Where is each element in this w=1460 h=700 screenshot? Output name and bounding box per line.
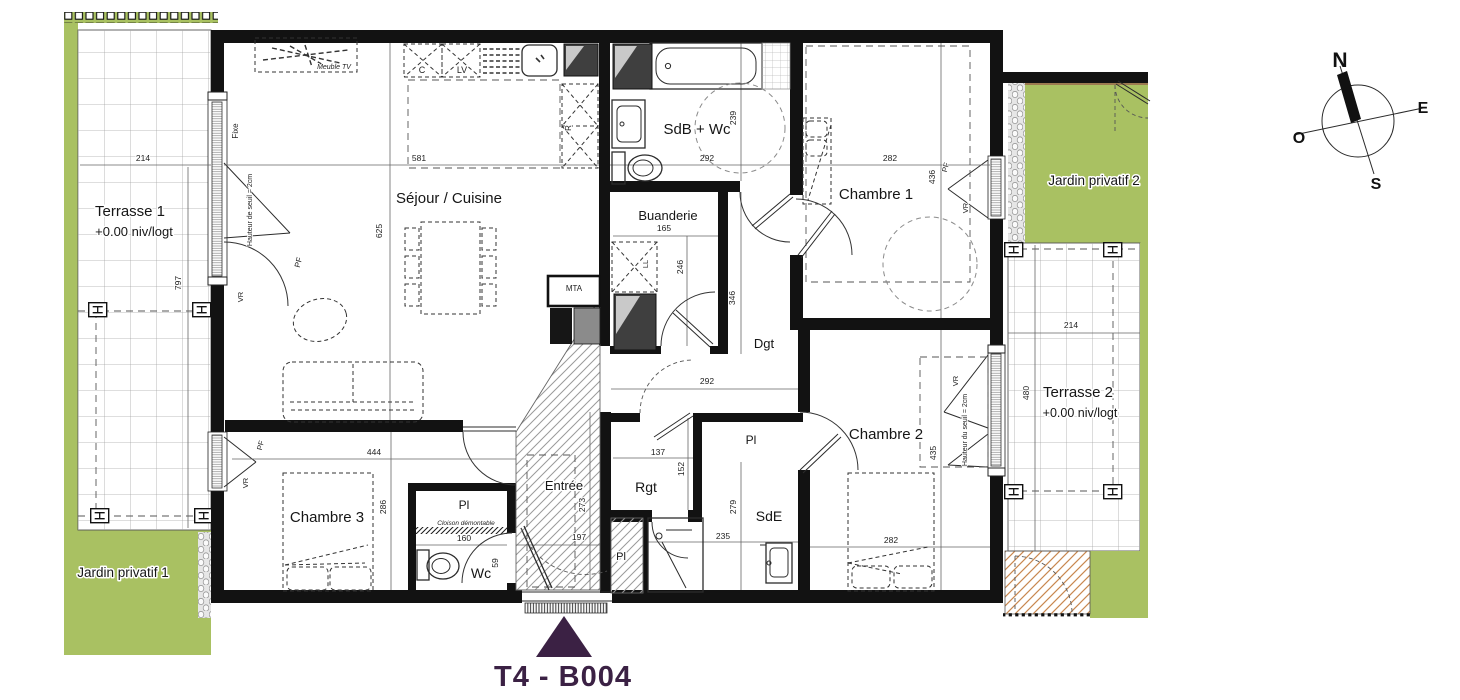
label-sejour: Séjour / Cuisine	[396, 190, 502, 207]
label-pl-dgt: Pl	[746, 433, 757, 447]
sdb-toilet	[612, 152, 662, 184]
chambre3-door-swing	[463, 432, 516, 485]
label-chambre1: Chambre 1	[839, 186, 913, 203]
bathtub	[650, 43, 762, 89]
ann-pf-ch1: PF	[940, 161, 951, 173]
label-buanderie: Buanderie	[638, 208, 697, 223]
ann-r: R	[564, 125, 573, 131]
label-terrasse2-level: +0.00 niv/logt	[1043, 406, 1118, 420]
chambre1-window	[948, 156, 1005, 219]
dim-sejour-w: 581	[412, 153, 426, 163]
sdb-door-swing	[740, 192, 790, 242]
compass-north: N	[1332, 49, 1347, 72]
jardin-privatif-2-area	[1025, 85, 1148, 243]
drainer-lines	[483, 49, 520, 73]
bed-single	[803, 118, 831, 204]
label-dgt: Dgt	[754, 336, 775, 351]
dim-terrasse1-h: 797	[173, 276, 183, 290]
ann-lv: LV	[457, 65, 467, 75]
sde-door-swing	[652, 522, 688, 558]
label-rgt: Rgt	[635, 479, 657, 495]
label-wc: Wc	[471, 565, 491, 581]
shower	[648, 518, 703, 592]
sdb-vanity	[612, 100, 645, 148]
dim-sejour-h: 625	[374, 224, 384, 238]
pebble-strip-2	[1008, 83, 1025, 243]
gravel-path-area	[1005, 551, 1090, 614]
dim-wc-w: 160	[457, 533, 471, 543]
dim-rgt-h: 152	[676, 462, 686, 476]
tiled-ledge	[762, 43, 790, 89]
ann-vr-ch1: VR	[961, 202, 970, 213]
dim-ch3-w: 444	[367, 447, 381, 457]
ann-c: C	[419, 65, 426, 75]
dim-terrasse1-w: 214	[136, 153, 150, 163]
wc-toilet	[417, 550, 459, 580]
kitchen-units	[404, 44, 598, 168]
dim-sde-w: 235	[716, 531, 730, 541]
ann-mta: MTA	[566, 284, 583, 293]
washing-machine	[612, 242, 657, 292]
label-sde: SdE	[756, 508, 782, 524]
unit-title: T4 - B004	[494, 661, 632, 693]
dim-terrasse2-w: 214	[1064, 320, 1078, 330]
kitchen-counter	[408, 80, 560, 168]
label-pl-entree: Pl	[616, 551, 626, 563]
floorplan-page: 214 797 581 625 292 239 282 436 165 246 …	[0, 0, 1460, 700]
dim-entree-h: 273	[577, 498, 587, 512]
ann-vr-ch2: VR	[951, 375, 960, 386]
dim-dgt-h: 346	[727, 291, 737, 305]
label-terrasse1: Terrasse 1	[95, 203, 165, 220]
label-jardin2: Jardin privatif 2	[1048, 173, 1140, 188]
rgt-door-swing	[640, 360, 693, 413]
water-heater	[614, 294, 656, 350]
pebble-strip-1	[198, 532, 211, 618]
jardin-privatif-1-area	[64, 530, 211, 655]
garden-block-br	[1090, 551, 1148, 618]
ann-meuble-tv: Meuble TV	[317, 64, 352, 71]
dim-ch3-h: 286	[378, 500, 388, 514]
dim-sde-h: 279	[728, 500, 738, 514]
ann-cloison: Cloison démontable	[437, 520, 495, 527]
buanderie-door-leaf	[673, 310, 713, 347]
label-chambre3: Chambre 3	[290, 509, 364, 526]
dim-ch1-w: 282	[883, 153, 897, 163]
chambre1-furniture	[803, 46, 977, 311]
dim-ch2-w: 282	[884, 535, 898, 545]
ann-seuil-ch2: Hauteur du seuil = 2cm	[962, 394, 969, 466]
ann-pf-ch3: PF	[255, 439, 266, 451]
dim-entree-w: 197	[572, 532, 586, 542]
compass-south: S	[1371, 176, 1382, 193]
ann-ll: LL	[641, 260, 650, 268]
compass-rose: N E O S	[1293, 49, 1429, 193]
dim-buanderie-w: 165	[657, 223, 671, 233]
dim-buanderie-h: 246	[675, 260, 685, 274]
dotted-boundary	[1003, 611, 1091, 618]
ann-fixe: Fixe	[231, 123, 240, 139]
dim-ch2-h: 435	[928, 446, 938, 460]
chambre2-door-leaf	[800, 434, 841, 473]
coffee-table	[288, 293, 351, 348]
dim-wc-h: 59	[490, 558, 500, 568]
sde-washbasin	[760, 543, 792, 583]
chambre3-door-leaf	[463, 427, 516, 431]
chambre3-furniture	[283, 473, 373, 591]
entrance-mat	[525, 603, 607, 613]
ann-vr-ch3: VR	[241, 477, 250, 488]
label-pl-wc: Pl	[459, 498, 470, 512]
compass-needle	[1337, 71, 1361, 123]
ann-seuil-sejour: Hauteur de seuil = 2cm	[247, 174, 254, 246]
entrance-arrow	[536, 616, 592, 657]
label-chambre2: Chambre 2	[849, 426, 923, 443]
unit-marker: T4 - B004	[494, 616, 632, 693]
dim-ch1-h: 436	[927, 170, 937, 184]
dim-sdb-w: 292	[700, 153, 714, 163]
rgt-door-leaf	[654, 413, 693, 440]
dim-rgt-w: 137	[651, 447, 665, 457]
chambre1-door-leaf	[798, 211, 835, 258]
entrance-sill	[522, 592, 612, 601]
fence-squares	[64, 12, 218, 23]
jardin-2-top-wall	[1003, 72, 1148, 83]
floorplan-drawing: 214 797 581 625 292 239 282 436 165 246 …	[0, 0, 1460, 700]
sdb-door-leaf	[752, 194, 793, 229]
ch1-turning-circle	[883, 217, 977, 311]
compass-circle	[1322, 85, 1394, 157]
bed-double-ch2	[848, 473, 934, 591]
cloison-demontable-strip	[416, 527, 507, 534]
ann-pf-sejour: PF	[293, 256, 304, 268]
ann-vr-sejour: VR	[236, 291, 245, 302]
dim-terrasse2-h: 480	[1021, 386, 1031, 400]
bed-double-ch3	[283, 473, 373, 591]
compass-west: O	[1293, 130, 1305, 147]
label-jardin1: Jardin privatif 1	[77, 565, 169, 580]
label-entree: Entrée	[545, 478, 583, 493]
chambre2-furniture	[848, 473, 934, 591]
dim-dgt-w: 292	[700, 376, 714, 386]
dining-table	[405, 222, 496, 314]
sofa	[283, 362, 423, 422]
label-terrasse1-level: +0.00 niv/logt	[95, 224, 173, 239]
label-sdb: SdB + Wc	[663, 121, 731, 138]
compass-east: E	[1418, 100, 1429, 117]
label-terrasse2: Terrasse 2	[1043, 384, 1113, 401]
